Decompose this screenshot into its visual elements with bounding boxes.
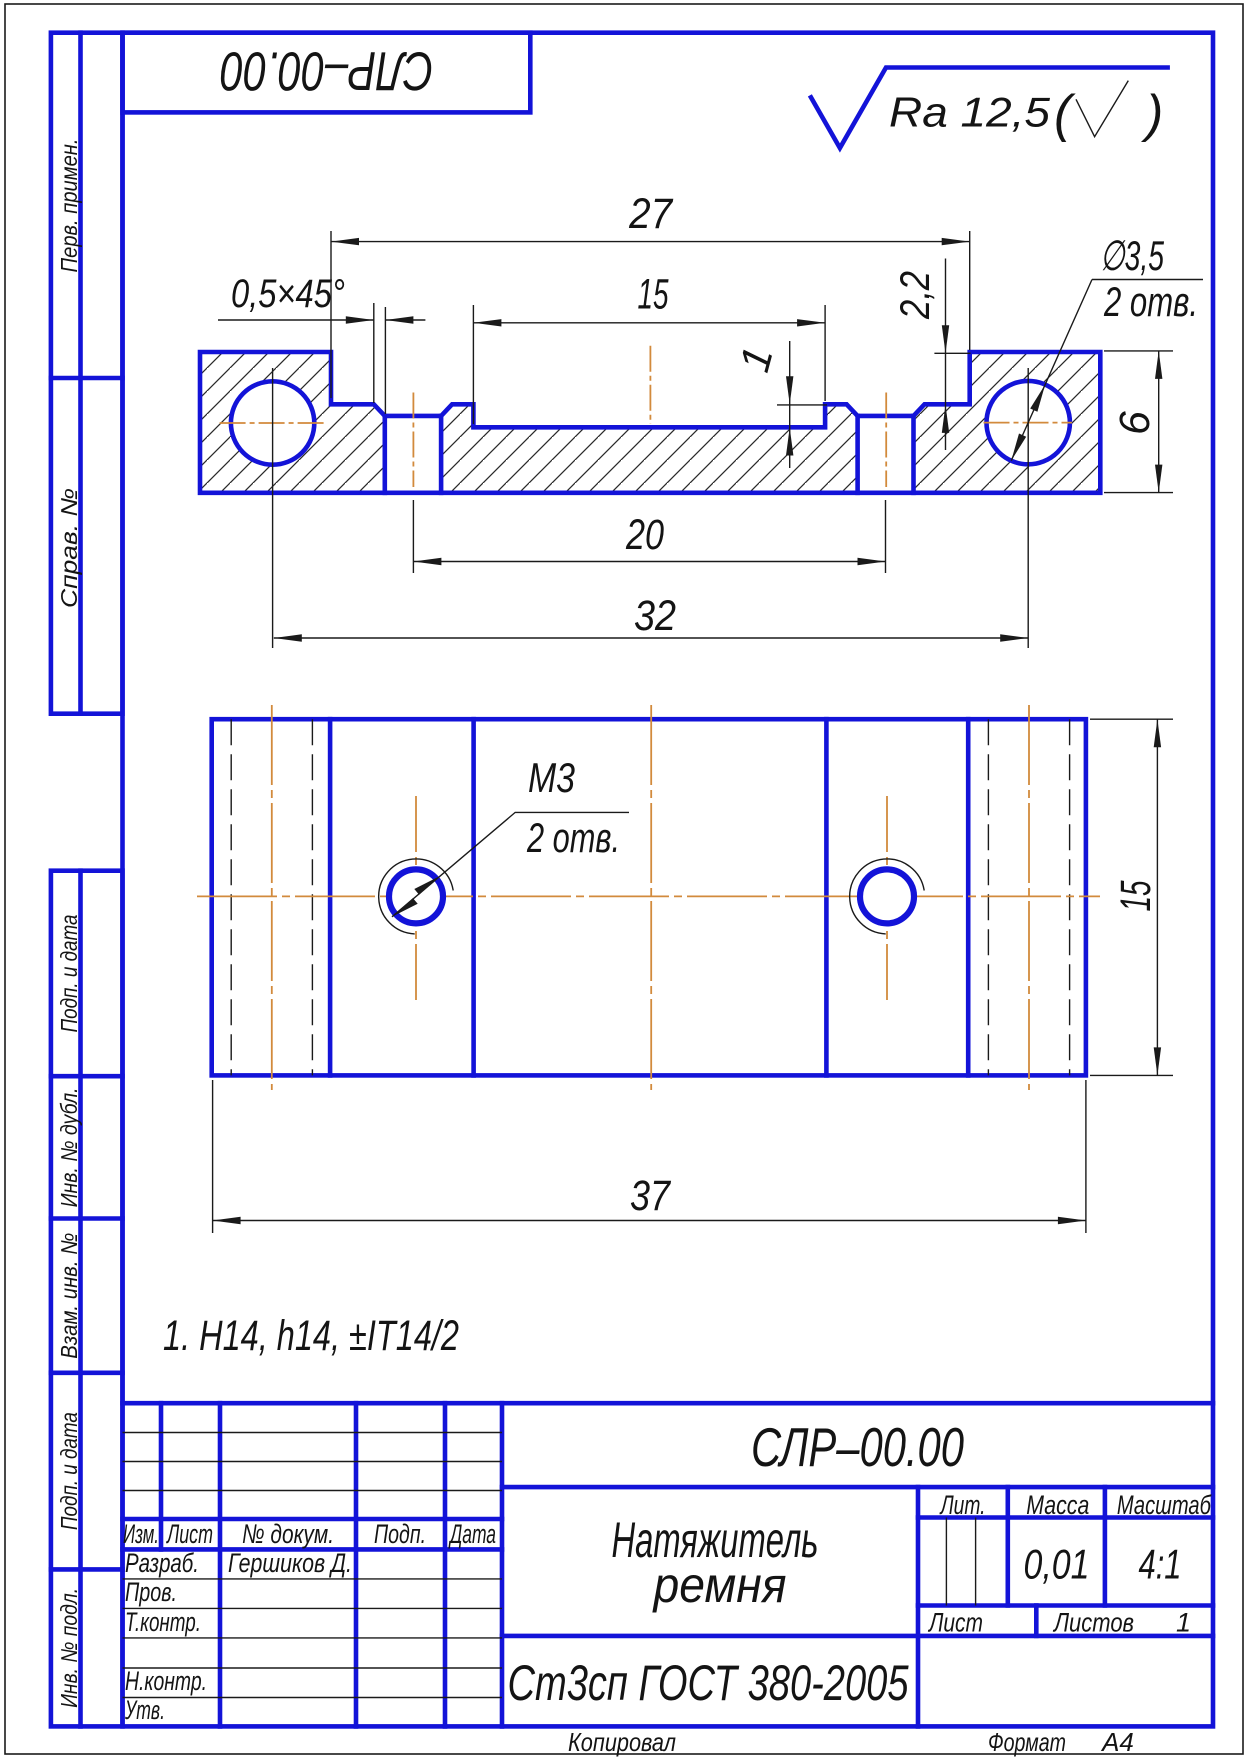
svg-text:1. Н14, h14, ±IT14/2: 1. Н14, h14, ±IT14/2 [163, 1312, 459, 1360]
svg-text:∅3,5: ∅3,5 [1100, 232, 1164, 279]
svg-text:0,01: 0,01 [1024, 1541, 1090, 1588]
svg-text:Подп.: Подп. [374, 1519, 426, 1549]
svg-text:Справ. №: Справ. № [56, 488, 82, 608]
svg-text:ремня: ремня [652, 1557, 787, 1613]
svg-text:Ra 12,5: Ra 12,5 [889, 89, 1051, 136]
svg-text:СЛР–00.00: СЛР–00.00 [220, 41, 433, 103]
svg-text:СЛР–00.00: СЛР–00.00 [751, 1416, 964, 1478]
svg-text:Лист: Лист [166, 1519, 213, 1549]
svg-text:Масса: Масса [1026, 1490, 1089, 1520]
svg-text:15: 15 [638, 271, 670, 319]
svg-text:Перв. примен.: Перв. примен. [56, 139, 82, 273]
svg-text:15: 15 [1112, 880, 1160, 912]
svg-text:Взам. инв. №: Взам. инв. № [56, 1233, 82, 1359]
svg-text:Дата: Дата [448, 1519, 496, 1549]
svg-text:1: 1 [1176, 1608, 1191, 1638]
svg-text:Формат: Формат [988, 1727, 1066, 1757]
svg-text:А4: А4 [1100, 1727, 1134, 1757]
svg-text:Масштаб: Масштаб [1117, 1490, 1212, 1520]
svg-text:Пров.: Пров. [125, 1577, 177, 1607]
svg-text:Т.контр.: Т.контр. [125, 1607, 201, 1637]
svg-text:№ докум.: № докум. [242, 1519, 334, 1549]
svg-text:Инв. № дубл.: Инв. № дубл. [56, 1087, 82, 1207]
svg-text:37: 37 [630, 1172, 672, 1220]
svg-text:Н.контр.: Н.контр. [125, 1666, 207, 1696]
svg-text:Изм.: Изм. [123, 1519, 159, 1549]
svg-text:Гершиков Д.: Гершиков Д. [228, 1548, 352, 1578]
svg-text:0,5×45°: 0,5×45° [231, 272, 345, 316]
svg-text:М3: М3 [528, 754, 575, 801]
svg-text:2 отв.: 2 отв. [1103, 278, 1198, 325]
svg-text:Лист: Лист [927, 1608, 983, 1638]
svg-text:Копировал: Копировал [568, 1727, 676, 1757]
svg-text:Лит.: Лит. [939, 1490, 985, 1520]
svg-text:Разраб.: Разраб. [125, 1548, 199, 1578]
svg-text:Листов: Листов [1052, 1608, 1134, 1638]
svg-text:6: 6 [1111, 411, 1159, 435]
svg-text:Инв. № подл.: Инв. № подл. [56, 1588, 82, 1708]
svg-text:Подп. и дата: Подп. и дата [56, 1412, 82, 1530]
svg-text:32: 32 [634, 592, 676, 640]
svg-text:4:1: 4:1 [1139, 1541, 1182, 1588]
svg-text:Утв.: Утв. [124, 1695, 165, 1725]
svg-text:Подп. и дата: Подп. и дата [56, 915, 82, 1033]
svg-text:20: 20 [625, 511, 664, 559]
svg-text:2 отв.: 2 отв. [526, 814, 620, 861]
svg-text:27: 27 [628, 190, 674, 238]
svg-text:2,2: 2,2 [891, 271, 938, 320]
svg-text:Ст3сп ГОСТ 380-2005: Ст3сп ГОСТ 380-2005 [508, 1655, 909, 1711]
